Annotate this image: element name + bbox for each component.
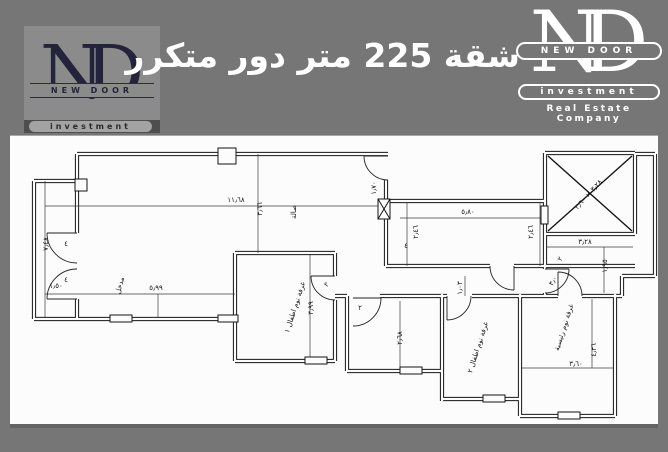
plan-annotation: ٧٫٤٨ [42, 237, 50, 251]
plan-annotation: ١٫٥٠ [49, 282, 63, 290]
plan-annotation: ٢٫٤٦ [412, 225, 420, 239]
floor-plan-panel: ١١٫٦٨٣٫٦٦صالة٧٫٤٨١٫٥٠٥٫٩٩مدخل٥٫٨٠٢٫٤٦٢٫٤… [10, 135, 658, 424]
walls-outer [34, 153, 655, 416]
plan-annotation: ٥٫٩٩ [149, 284, 163, 292]
plan-annotation: ٤ [404, 242, 408, 250]
plan-annotation: ٣٫٦٦ [256, 202, 264, 216]
door-arcs [47, 156, 582, 326]
plan-annotation: غرفة نوم رئيسية [553, 303, 576, 352]
page-title: شقة 225 متر دور متكرر [125, 36, 520, 75]
plan-annotation: ٣٫٠ [547, 275, 559, 287]
plan-annotation: ١١٫٦٨ [227, 196, 245, 204]
floor-plan: ١١٫٦٨٣٫٦٦صالة٧٫٤٨١٫٥٠٥٫٩٩مدخل٥٫٨٠٢٫٤٦٢٫٤… [10, 136, 658, 424]
logo-right-investment-pill: investment [518, 84, 660, 100]
plan-annotation: ١٫٩٥ [601, 259, 609, 273]
plan-annotation: ١٫٠٣ [456, 281, 464, 295]
logo-left-band: NEW DOOR [30, 83, 154, 98]
plan-annotation: ٥٫٨٠ [461, 208, 475, 216]
plan-annotation: ٣٫٦٠ [569, 360, 583, 368]
plan-annotation: ٢ [556, 255, 565, 262]
plan-annotation: ١٫٧٠ [370, 181, 378, 195]
logo-right-band: NEW DOOR [516, 42, 662, 60]
plan-annotation: ٣٫٩٩ [307, 301, 315, 315]
plan-annotation: ٢٫٤٦ [527, 225, 535, 239]
plan-annotation: ٤٫٣٦ [590, 343, 598, 357]
plan-annotation: ٢٫٦٨ [396, 331, 404, 345]
walls-inner [34, 153, 655, 416]
logo-right-tagline: Real Estate Company [516, 104, 662, 124]
logo-right: ND NEW DOOR investment Real Estate Compa… [516, 8, 662, 118]
plan-annotation: صالة [290, 205, 298, 219]
plan-annotation: ٣٫٢٨ [578, 238, 592, 246]
plan-annotation: غرفة نوم اطفال ٢ [466, 321, 490, 374]
page-background: { "header": { "title": "شقة 225 متر دور … [0, 0, 668, 452]
plan-annotation: ٤ [64, 240, 68, 248]
plan-annotation: غرفة نوم اطفال ١ [283, 281, 307, 334]
plan-annotation: ٤ [64, 276, 68, 284]
plan-annotation: مدخل [114, 276, 126, 295]
plan-annotation: ٢ [322, 280, 330, 288]
plan-annotation: ٢ [358, 304, 362, 312]
logo-left-investment-pill: investment [29, 121, 152, 132]
